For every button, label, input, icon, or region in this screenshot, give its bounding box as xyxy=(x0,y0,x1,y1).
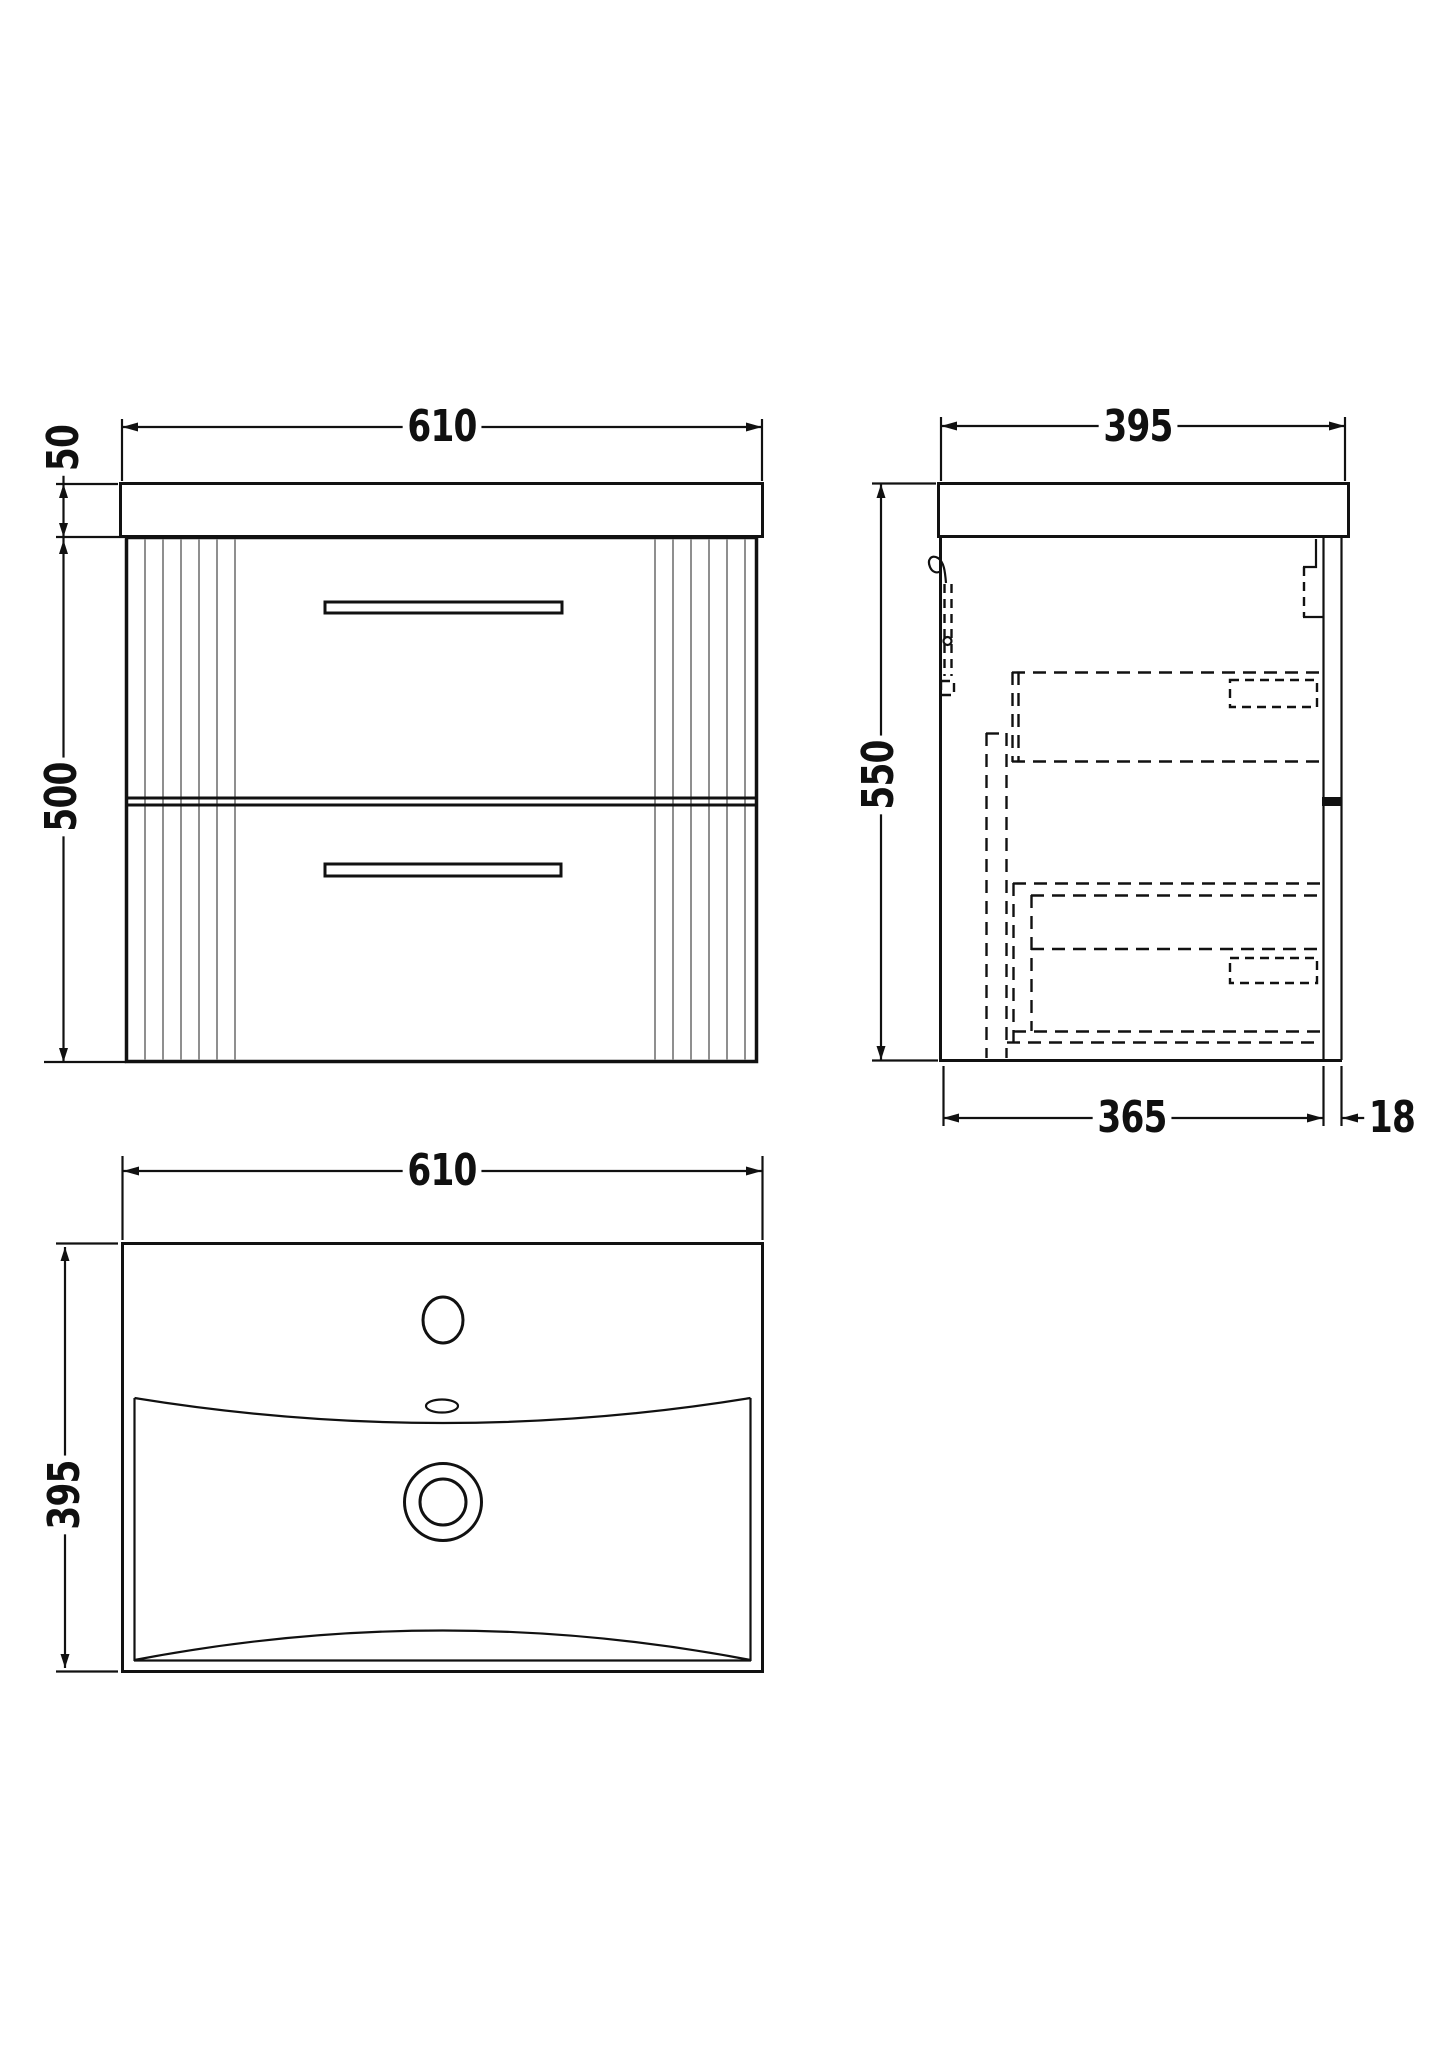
wall-rail xyxy=(1322,797,1342,806)
waste-pipe-hidden xyxy=(986,733,1007,1058)
front-worktop xyxy=(121,484,763,537)
dim-label-front-width: 610 xyxy=(403,405,482,449)
dim-label-cabinet-depth: 365 xyxy=(1093,1096,1172,1140)
dim-label-worktop-height: 50 xyxy=(42,420,86,476)
basin-rim xyxy=(123,1244,763,1672)
hanging-bracket-back xyxy=(1303,539,1323,617)
side-worktop xyxy=(939,484,1349,537)
drawer-box-bottom-hidden xyxy=(1007,883,1322,1043)
vanity-technical-drawing: 610 50 500 395 550 365 18 610 395 xyxy=(0,0,1445,2045)
plan-view xyxy=(56,1156,763,1672)
dim-label-side-depth: 395 xyxy=(1099,405,1178,449)
drawing-linework xyxy=(0,0,1445,2045)
drawer-box-top-hidden xyxy=(1012,672,1322,762)
front-view xyxy=(44,419,763,1062)
drawer-handle-bottom xyxy=(325,864,561,876)
side-dim-panel-thickness xyxy=(1342,1066,1366,1126)
dim-label-cabinet-height: 500 xyxy=(40,758,84,837)
dim-label-plan-width: 610 xyxy=(403,1149,482,1193)
dim-label-panel-thickness: 18 xyxy=(1364,1096,1420,1140)
dim-label-overall-height: 550 xyxy=(857,736,901,815)
drawer-handle-top xyxy=(325,602,562,613)
drawer-runner-bottom xyxy=(1230,958,1317,983)
side-view xyxy=(872,417,1365,1126)
dim-label-plan-depth: 395 xyxy=(43,1456,87,1535)
drawer-runner-top xyxy=(1230,680,1317,707)
